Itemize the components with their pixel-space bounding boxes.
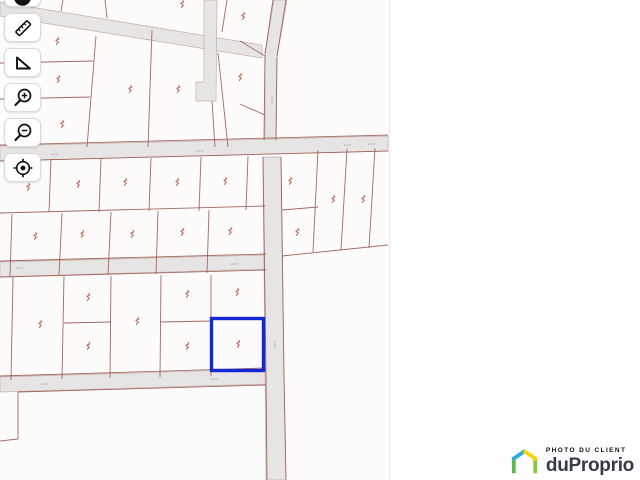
lot-boundary [161, 321, 211, 322]
lot-number-label [361, 195, 365, 203]
logo-brand: duProprio [546, 456, 634, 475]
measure-angle-button[interactable] [4, 48, 41, 77]
lot-boundary [64, 322, 111, 323]
lot-number-label [185, 342, 189, 350]
lot-number-label [76, 180, 80, 188]
locate-target-icon [11, 156, 35, 180]
zoom-out-icon [11, 121, 35, 145]
map-road [196, 0, 217, 101]
lot-boundary [282, 207, 318, 210]
lot-boundary [0, 206, 265, 213]
lot-number-label [331, 195, 335, 203]
lot-number-label [241, 12, 245, 20]
measure-distance-button[interactable] [4, 13, 41, 42]
lot-number-label [236, 340, 240, 348]
lot-number-label [135, 317, 139, 325]
lot-number-label [33, 232, 37, 240]
logo-text: PHOTO DU CLIENT duProprio [546, 448, 634, 476]
lot-number-label [228, 227, 232, 235]
zoom-in-icon [11, 86, 35, 110]
zoom-out-button[interactable] [4, 118, 41, 147]
lot-boundary [149, 158, 151, 211]
lot-boundary [341, 149, 347, 250]
lot-boundary [369, 148, 375, 248]
lot-number-label [180, 228, 184, 236]
lot-number-label [176, 85, 180, 93]
lot-boundary [105, 0, 107, 18]
lot-number-label [128, 85, 132, 93]
lot-boundary [11, 277, 13, 380]
blank-side-panel [390, 0, 640, 480]
lot-number-label [130, 230, 134, 238]
marker-icon [5, 0, 40, 7]
lot-boundary [61, 0, 63, 11]
lot-number-label [180, 0, 184, 8]
lot-boundary [218, 53, 228, 147]
lot-number-label [123, 178, 127, 186]
lot-boundary [222, 0, 227, 32]
zoom-in-button[interactable] [4, 83, 41, 112]
lot-boundary [160, 275, 161, 377]
lot-boundary [110, 276, 111, 378]
lot-number-label [80, 230, 84, 238]
lot-number-label [223, 177, 227, 185]
lot-boundary [313, 150, 318, 252]
lot-boundary [49, 159, 51, 212]
lot-boundary [62, 276, 64, 379]
lot-number-label [86, 342, 90, 350]
lot-number-label [185, 290, 189, 298]
duproprio-house-icon [510, 448, 539, 475]
logo-tagline: PHOTO DU CLIENT [546, 448, 634, 455]
lot-boundary [240, 104, 265, 115]
lot-number-label [86, 293, 90, 301]
lot-number-label [26, 183, 30, 191]
duproprio-logo: PHOTO DU CLIENT duProprio [510, 448, 634, 476]
lot-number-label [55, 37, 59, 45]
lot-number-label [60, 120, 64, 128]
map-toolbar [4, 0, 41, 182]
lot-boundary [212, 101, 215, 147]
lot-number-label [295, 228, 299, 236]
lot-boundary [0, 439, 18, 441]
lot-number-label [56, 75, 60, 83]
lot-number-label [235, 288, 239, 296]
lot-number-label [175, 178, 179, 186]
selected-lot-outline[interactable] [212, 319, 264, 371]
protractor-icon [11, 51, 35, 75]
lot-boundary [282, 245, 388, 256]
marker-button[interactable] [4, 0, 41, 7]
lot-boundary [199, 157, 201, 211]
ruler-icon [11, 16, 35, 40]
lot-number-label [238, 73, 242, 81]
lot-number-label [38, 320, 42, 328]
map-viewport[interactable] [0, 0, 390, 480]
locate-button[interactable] [4, 153, 41, 182]
lot-boundary [246, 156, 248, 210]
lot-boundary [87, 36, 96, 147]
lot-number-label [288, 177, 292, 185]
lot-boundary [99, 158, 101, 212]
cadastral-map [0, 0, 389, 480]
lot-boundary [148, 30, 152, 147]
screenshot-root: PHOTO DU CLIENT duProprio [0, 0, 640, 480]
